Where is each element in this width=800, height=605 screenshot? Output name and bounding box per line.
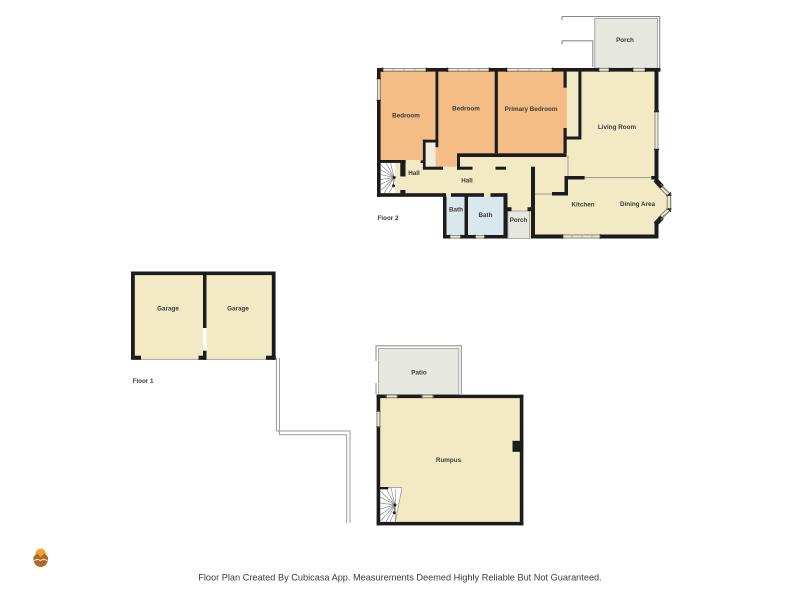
svg-text:Floor Plan Created By Cubicasa: Floor Plan Created By Cubicasa App. Meas… (198, 573, 601, 583)
svg-text:Hall: Hall (461, 178, 473, 185)
svg-text:Bath: Bath (449, 207, 463, 214)
svg-text:Bath: Bath (479, 212, 493, 219)
svg-text:Living Room: Living Room (598, 124, 637, 131)
svg-text:Floor 2: Floor 2 (378, 215, 399, 222)
svg-text:Primary Bedroom: Primary Bedroom (505, 106, 558, 113)
svg-text:Porch: Porch (510, 217, 528, 224)
svg-text:Kitchen: Kitchen (571, 202, 594, 209)
svg-text:Garage: Garage (227, 306, 249, 313)
svg-text:Patio: Patio (411, 370, 427, 377)
svg-text:Bedroom: Bedroom (452, 106, 480, 113)
svg-text:Bedroom: Bedroom (392, 113, 420, 120)
svg-text:Garage: Garage (157, 306, 179, 313)
svg-text:Porch: Porch (616, 37, 634, 44)
svg-text:Floor 1: Floor 1 (133, 378, 154, 385)
svg-text:Dining Area: Dining Area (620, 201, 656, 208)
svg-text:Hall: Hall (408, 170, 420, 177)
svg-text:Rumpus: Rumpus (436, 457, 462, 464)
